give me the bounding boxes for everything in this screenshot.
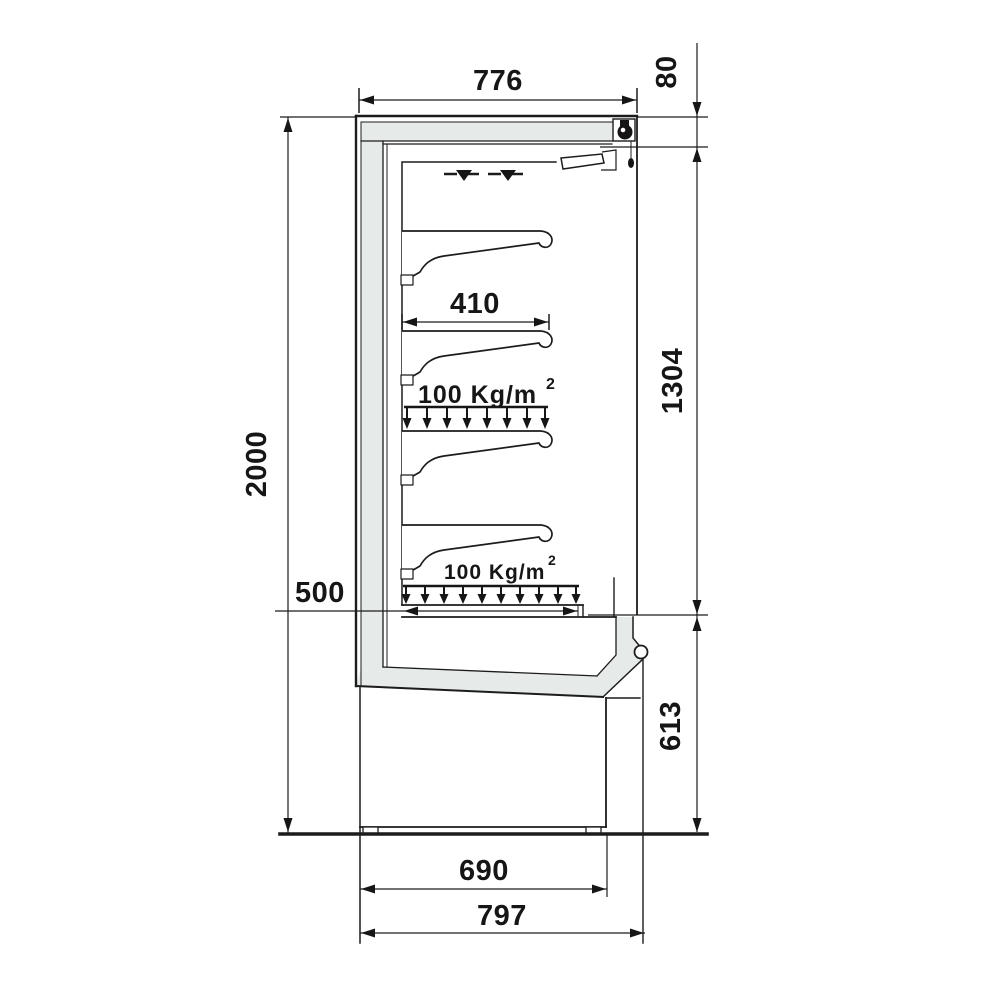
dim-label-canopy-height: 80 [651,55,683,88]
dim-label-total-height: 2000 [241,431,273,498]
light-fixture [561,154,604,169]
load-arrows-lower [402,586,581,604]
shelf-1 [402,231,552,280]
shelf-1-bracket [401,275,413,285]
shelf-load-exp-upper: 2 [546,376,555,393]
shelf-load-exp-lower: 2 [548,552,556,568]
dim-label-display-height: 1304 [657,348,689,415]
air-curtain-symbol [444,170,532,181]
shelf-4-bracket [401,569,413,579]
dim-label-base-height: 613 [655,701,687,751]
dim-label-base-depth: 690 [459,855,509,887]
shelf-3 [402,431,552,480]
shelf-load-label-lower: 100 Kg/m [444,561,545,584]
bumper-rail-circle [635,646,648,659]
technical-drawing-page: 776 80 2000 1304 613 410 500 690 797 100… [0,0,1000,1000]
roller-center-dot [621,128,626,133]
back-wall-insulation [361,141,383,668]
canopy-insulation [361,122,612,141]
load-labels: 100 Kg/m 2 100 Kg/m 2 [418,376,556,584]
cord-weight-icon [628,158,634,168]
dim-label-deck-depth: 500 [295,577,345,609]
airflow-triangle-icon [456,170,472,181]
dim-label-overall-depth: 797 [477,900,527,932]
shelf-3-bracket [401,475,413,485]
load-arrows-upper [403,407,550,429]
shelf-load-label-upper: 100 Kg/m [418,381,537,409]
shelf-2-bracket [401,375,413,385]
dimension-labels: 776 80 2000 1304 613 410 500 690 797 [241,55,689,932]
dim-label-shelf-depth: 410 [450,288,500,320]
airflow-triangle-icon [500,170,516,181]
night-blind-roller-icon [618,125,633,140]
multideck-cabinet-section-drawing: 776 80 2000 1304 613 410 500 690 797 100… [0,0,1000,1000]
shelf-2 [402,331,552,380]
dim-label-top-width: 776 [473,65,523,97]
dimension-arrowheads [284,96,702,938]
